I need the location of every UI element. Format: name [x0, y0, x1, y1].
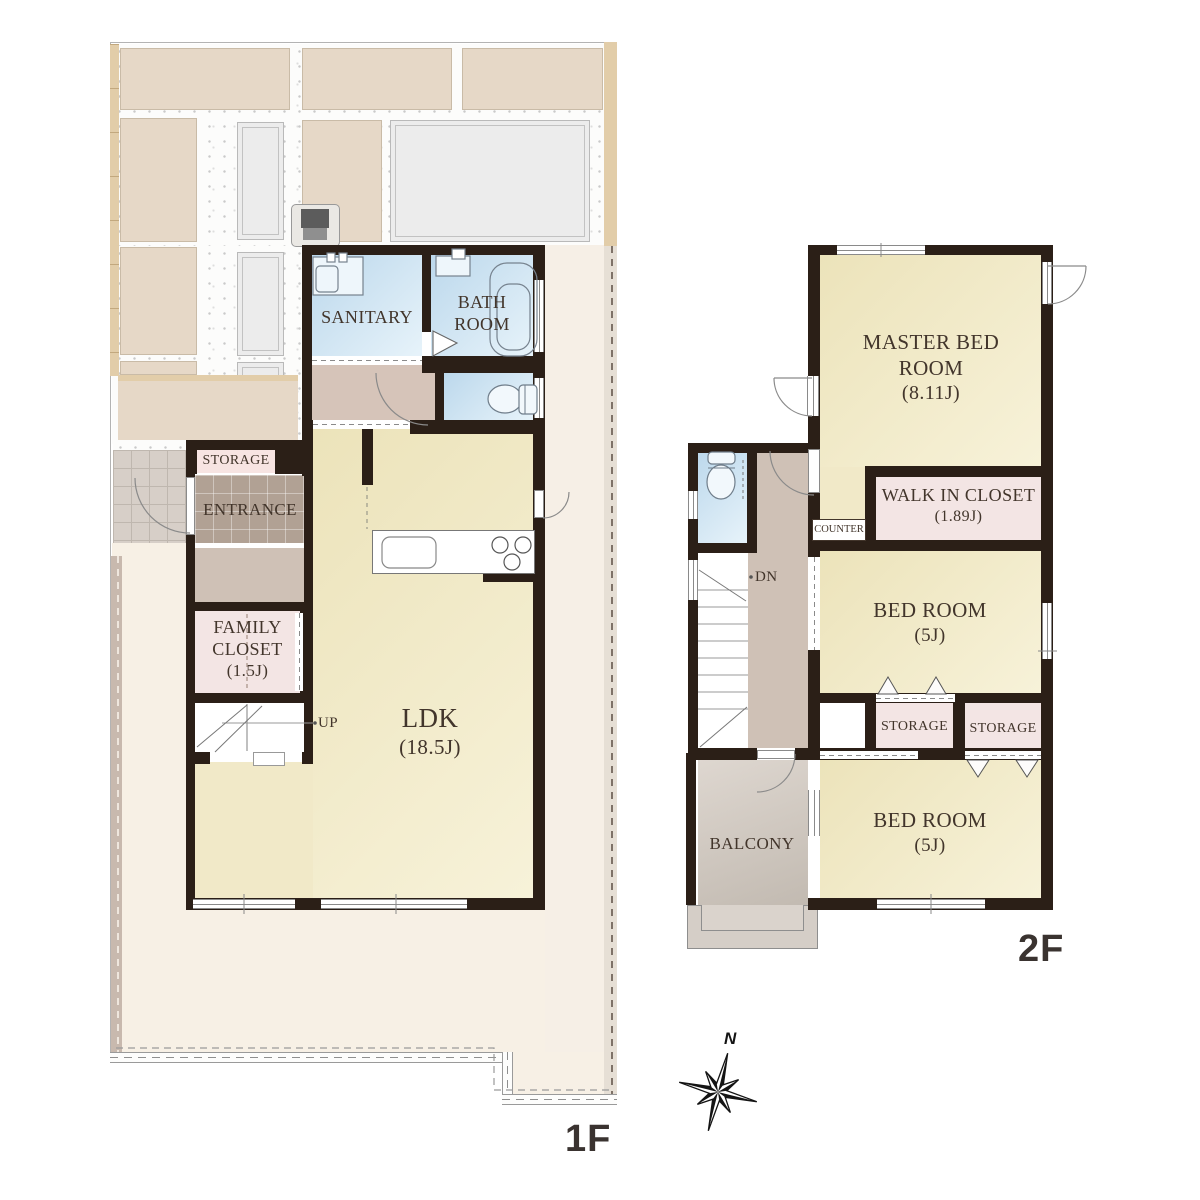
fence-tan-west [110, 44, 119, 376]
planting-pad [120, 361, 197, 375]
bedroom-south-balcony-window [808, 790, 820, 836]
bedroom-south-sliding-door [820, 751, 918, 759]
room-washroom-hall [312, 365, 435, 420]
fence-dashed-line [117, 556, 119, 1052]
master-east-casement [1042, 262, 1052, 304]
fence-west-lower [111, 556, 122, 1052]
planting-pad [462, 48, 603, 110]
planting-pad [120, 118, 197, 242]
room-ldk-west [195, 762, 313, 898]
balcony-parapet-notch [701, 905, 804, 931]
wall [795, 748, 820, 760]
storage-1f-label: STORAGE [197, 452, 275, 469]
room-sanitary [312, 255, 422, 356]
wall [865, 466, 876, 540]
concrete-pad [237, 122, 284, 240]
bedroom-east-window [1042, 603, 1052, 659]
sanitary-label: SANITARY [312, 307, 422, 329]
front-door-leaf [186, 477, 195, 535]
planting-pad [120, 247, 197, 355]
wall [422, 250, 431, 332]
wall [688, 543, 757, 553]
boundary-south-left [110, 1052, 502, 1063]
sliding-door-sanitary [312, 356, 422, 365]
hallway-2f-upper [757, 451, 808, 543]
bedroom-east-sliding-door [808, 557, 820, 650]
wall [186, 450, 197, 474]
yard-step [513, 1052, 604, 1094]
entrance-label: ENTRANCE [195, 500, 305, 521]
wall [747, 451, 757, 543]
dn-label: DN [755, 568, 795, 586]
bedroom-south-window [877, 899, 985, 909]
wall [1041, 245, 1053, 910]
wall [808, 540, 1053, 551]
wall [688, 748, 757, 760]
floor-plan-canvas: SANITARY BATH ROOM STORAGE ENTRANCE FAMI… [0, 0, 1200, 1200]
wall [304, 703, 313, 752]
bathroom-label: BATH ROOM [434, 292, 530, 336]
master-door-leaf [808, 449, 820, 493]
stairs-1f [195, 703, 313, 752]
ldk-south-window-west [193, 899, 295, 909]
up-label: UP [318, 714, 358, 732]
wall [275, 450, 313, 474]
family-closet-label: FAMILY CLOSET(1.5J) [191, 617, 304, 682]
parking-space [390, 120, 590, 242]
floor1-label: 1F [565, 1118, 611, 1161]
wall [186, 752, 210, 764]
bedroom-east-label: BED ROOM(5J) [840, 598, 1020, 647]
wall [302, 245, 312, 366]
garden-step-dark [301, 209, 329, 228]
planting-pad [302, 48, 452, 110]
balcony-label: BALCONY [698, 834, 806, 855]
wall [186, 693, 313, 703]
boundary-dashed-line [611, 246, 613, 1105]
sliding-door-washroom [313, 420, 410, 429]
bedroom-south-label: BED ROOM(5J) [840, 808, 1020, 857]
storage-right-label: STORAGE [965, 720, 1041, 737]
room-toilet-2f [698, 451, 747, 543]
fence-tan-east [604, 42, 617, 246]
boundary-south-right [502, 1094, 617, 1105]
toilet-1f-window [534, 378, 544, 418]
yard-east [545, 245, 604, 1052]
floor2-label: 2F [1018, 928, 1064, 971]
wall [808, 245, 820, 451]
master-east-casement-arc [1048, 266, 1086, 304]
entrance-hall [195, 548, 305, 602]
counter-label: COUNTER [812, 524, 866, 537]
storage-left-label: STORAGE [876, 718, 953, 735]
back-door-leaf [534, 490, 544, 518]
toilet-2f-window [688, 491, 698, 519]
compass-north-label: N [724, 1029, 737, 1049]
stairs-2f [698, 553, 748, 748]
boundary-east [604, 246, 617, 1105]
room-balcony [698, 760, 808, 905]
ldk-south-window-east [321, 899, 467, 909]
master-west-casement [807, 376, 819, 416]
wall [186, 440, 313, 450]
ldk-label: LDK(18.5J) [355, 702, 505, 761]
porch [113, 450, 186, 543]
stairs-2f-window [688, 560, 698, 600]
wall [410, 420, 545, 434]
balcony-door-leaf [757, 750, 795, 759]
concrete-pad [237, 252, 284, 356]
yard-south [112, 910, 604, 1052]
room-toilet-1f [444, 373, 533, 420]
walk-in-closet-label: WALK IN CLOSET(1.89J) [876, 485, 1041, 526]
stairs-first-step [253, 752, 285, 766]
kitchen-counter [372, 530, 535, 574]
compass-icon [670, 1044, 767, 1141]
wall [865, 466, 1053, 477]
approach-band [118, 381, 298, 440]
wall [304, 475, 313, 611]
storage-right-door [965, 751, 1041, 759]
planting-pad [120, 48, 290, 110]
wall [362, 429, 373, 485]
bathroom-window [534, 280, 544, 352]
storage-left-door [876, 694, 955, 702]
master-north-window [837, 245, 925, 255]
room-ldk [313, 429, 533, 898]
master-bedroom-label: MASTER BED ROOM(8.11J) [856, 330, 1006, 406]
wall [186, 602, 304, 611]
wall [422, 356, 533, 373]
wall [686, 753, 696, 905]
wall [302, 752, 313, 764]
garden-step-gray [303, 228, 327, 240]
wall [435, 373, 444, 420]
wall [302, 366, 312, 422]
